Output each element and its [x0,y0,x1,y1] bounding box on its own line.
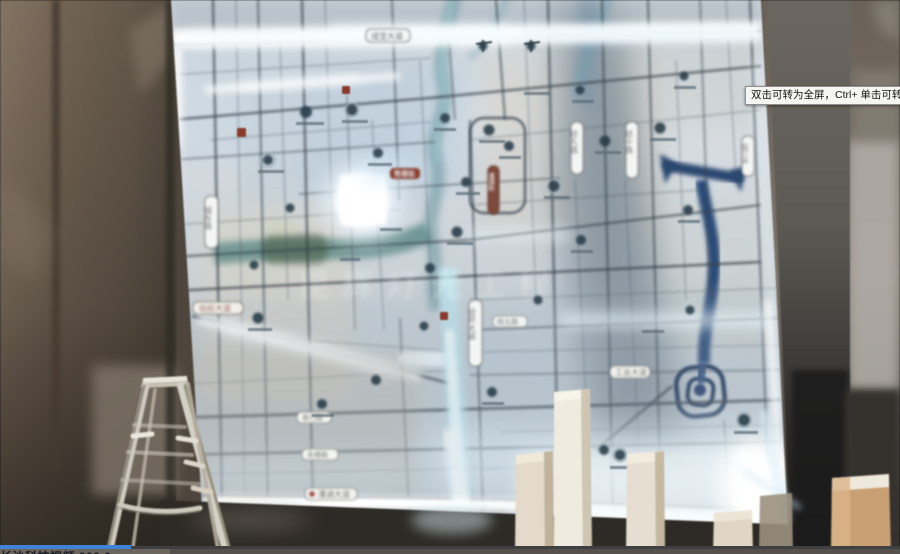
svg-text:站前大道: 站前大道 [199,303,231,313]
svg-text:售楼处: 售楼处 [394,169,415,178]
svg-text:永顺路: 永顺路 [307,450,328,459]
svg-text:经十路: 经十路 [625,129,634,154]
svg-text:潘湖大道: 潘湖大道 [318,489,350,499]
svg-text:潘湖街: 潘湖街 [487,172,494,192]
svg-text:成宝大道: 成宝大道 [371,31,403,41]
svg-text:纬五路: 纬五路 [497,317,518,326]
svg-text:经九路: 经九路 [570,129,579,154]
svg-text:街三产: 街三产 [741,142,750,168]
svg-text:工业大道: 工业大道 [615,367,647,377]
svg-text:城东路: 城东路 [204,206,213,230]
svg-text:经开大道: 经开大道 [468,307,477,341]
